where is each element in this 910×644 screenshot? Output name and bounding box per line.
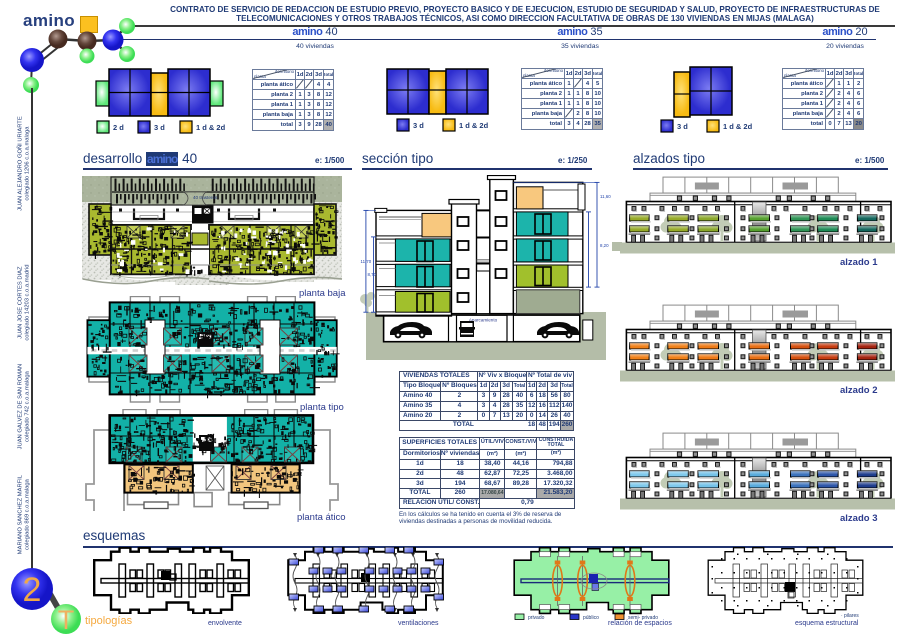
svg-text:privado: privado (528, 615, 545, 621)
svg-text:1 d & 2d: 1 d & 2d (196, 123, 226, 132)
svg-text:público: público (583, 615, 599, 621)
svg-text:2 d: 2 d (113, 123, 124, 132)
svg-text:3 d: 3 d (154, 123, 165, 132)
svg-text:2: 2 (23, 571, 42, 609)
svg-text:· pilares: · pilares (841, 613, 859, 619)
svg-text:3 d: 3 d (677, 122, 688, 131)
svg-text:8,70: 8,70 (368, 272, 377, 277)
svg-text:3 d: 3 d (413, 121, 424, 130)
svg-text:1 d & 2d: 1 d & 2d (459, 121, 489, 130)
svg-text:tipologías: tipologías (85, 615, 133, 627)
svg-text:1 d & 2d: 1 d & 2d (723, 122, 753, 131)
svg-text:11,60: 11,60 (600, 194, 611, 199)
svg-text:40 trasteros: 40 trasteros (193, 195, 218, 200)
svg-text:11,70: 11,70 (361, 259, 372, 264)
svg-text:8,20: 8,20 (600, 243, 609, 248)
svg-text:T: T (58, 605, 75, 635)
